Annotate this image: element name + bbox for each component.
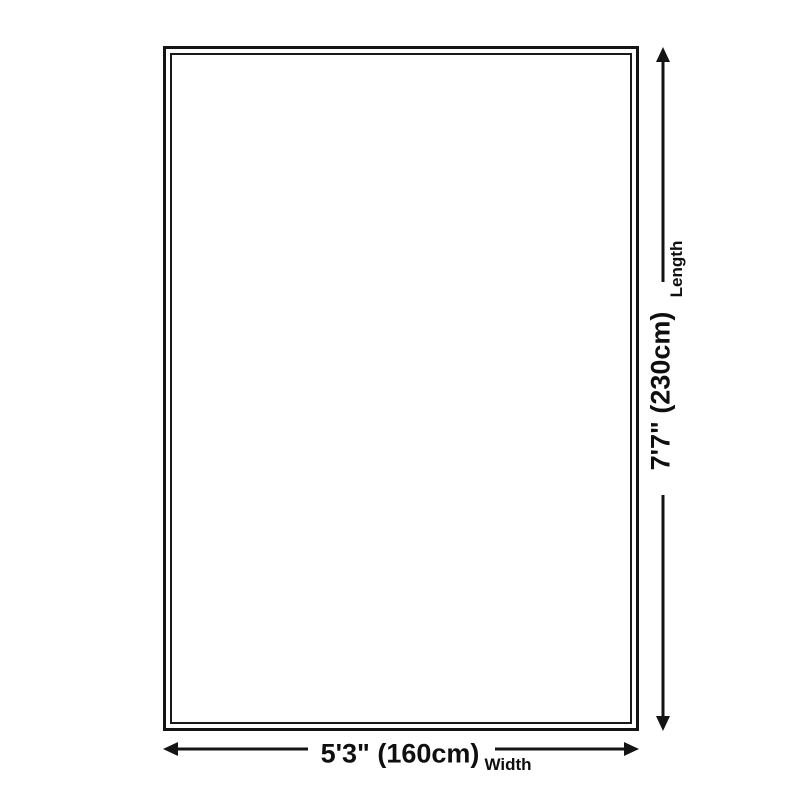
width-dimension-label: Width: [484, 755, 531, 775]
length-arrowhead-bottom: [656, 716, 670, 731]
width-arrowhead-left: [163, 742, 178, 756]
length-arrowhead-top: [656, 47, 670, 62]
dimension-diagram: 5'3" (160cm) Width 7'7" (230cm) Length: [0, 0, 800, 800]
length-dimension-value: 7'7" (230cm): [646, 312, 677, 471]
measurement-arrows: [0, 0, 800, 800]
width-dimension-value: 5'3" (160cm): [321, 739, 480, 770]
length-dimension-label: Length: [667, 241, 687, 298]
width-arrowhead-right: [624, 742, 639, 756]
